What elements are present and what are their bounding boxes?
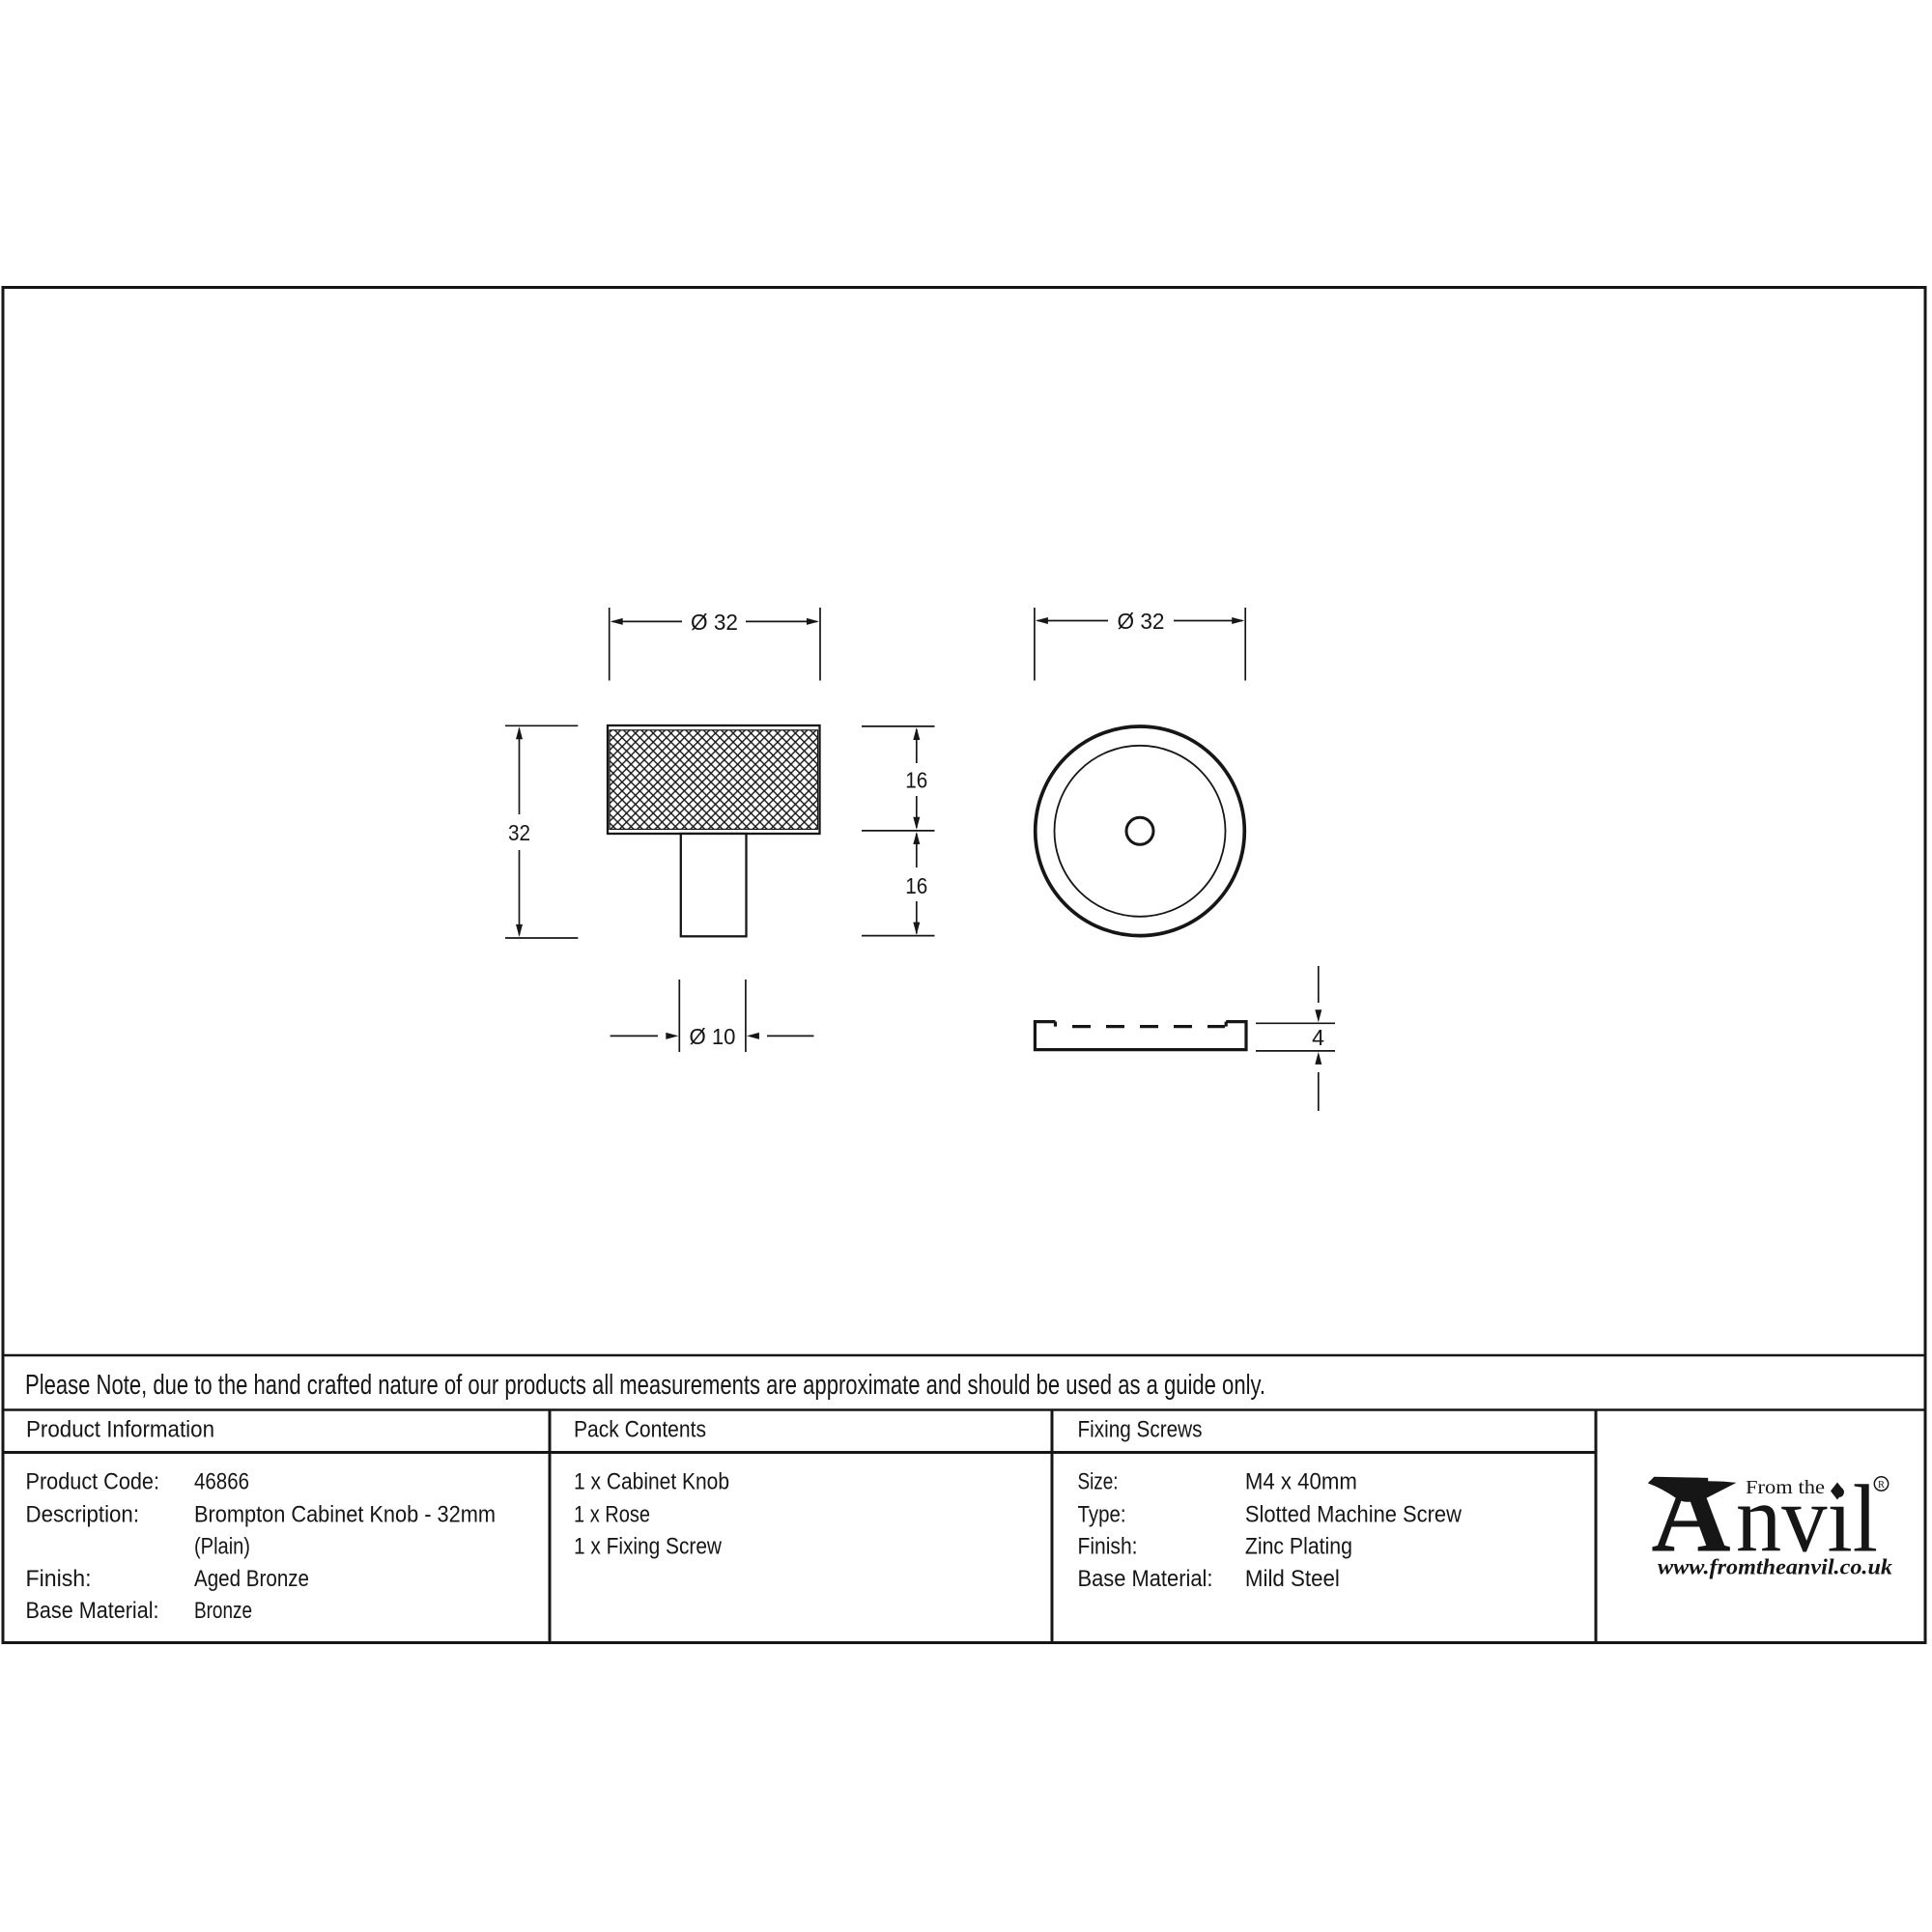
svg-text:16: 16: [905, 873, 927, 898]
svg-text:www.fromtheanvil.co.uk: www.fromtheanvil.co.uk: [1658, 1555, 1893, 1579]
svg-text:(Plain): (Plain): [194, 1534, 250, 1560]
svg-text:Please Note, due to the hand c: Please Note, due to the hand crafted nat…: [25, 1370, 1265, 1401]
svg-text:Pack Contents: Pack Contents: [574, 1417, 706, 1443]
svg-text:Description:: Description:: [26, 1502, 140, 1528]
svg-text:1 x Cabinet Knob: 1 x Cabinet Knob: [574, 1469, 729, 1495]
svg-text:Aged Bronze: Aged Bronze: [194, 1566, 309, 1592]
svg-text:Base Material:: Base Material:: [1078, 1566, 1213, 1592]
svg-text:16: 16: [905, 767, 927, 792]
svg-text:Size:: Size:: [1078, 1469, 1119, 1495]
svg-text:Ø 10: Ø 10: [690, 1024, 736, 1049]
svg-text:Finish:: Finish:: [1078, 1534, 1138, 1560]
svg-text:Product Code:: Product Code:: [26, 1469, 160, 1495]
svg-text:Finish:: Finish:: [26, 1566, 92, 1592]
svg-text:Mild Steel: Mild Steel: [1245, 1566, 1340, 1592]
svg-text:1 x Rose: 1 x Rose: [574, 1502, 650, 1528]
svg-text:Base Material:: Base Material:: [26, 1598, 159, 1624]
svg-text:R: R: [1878, 1480, 1885, 1491]
svg-text:M4 x 40mm: M4 x 40mm: [1245, 1469, 1357, 1495]
svg-text:1 x Fixing Screw: 1 x Fixing Screw: [574, 1534, 723, 1560]
svg-text:46866: 46866: [194, 1469, 249, 1495]
svg-text:32: 32: [508, 820, 530, 845]
svg-text:Fixing Screws: Fixing Screws: [1078, 1417, 1203, 1443]
svg-text:Brompton Cabinet Knob - 32mm: Brompton Cabinet Knob - 32mm: [194, 1502, 496, 1528]
svg-text:Zinc Plating: Zinc Plating: [1245, 1534, 1352, 1560]
svg-text:Ø 32: Ø 32: [1118, 609, 1165, 634]
svg-text:4: 4: [1312, 1025, 1324, 1050]
svg-text:Type:: Type:: [1078, 1502, 1126, 1528]
svg-text:Slotted Machine Screw: Slotted Machine Screw: [1245, 1502, 1463, 1528]
svg-text:Bronze: Bronze: [194, 1598, 252, 1624]
svg-text:Product Information: Product Information: [26, 1417, 214, 1443]
svg-text:Ø 32: Ø 32: [691, 610, 738, 635]
